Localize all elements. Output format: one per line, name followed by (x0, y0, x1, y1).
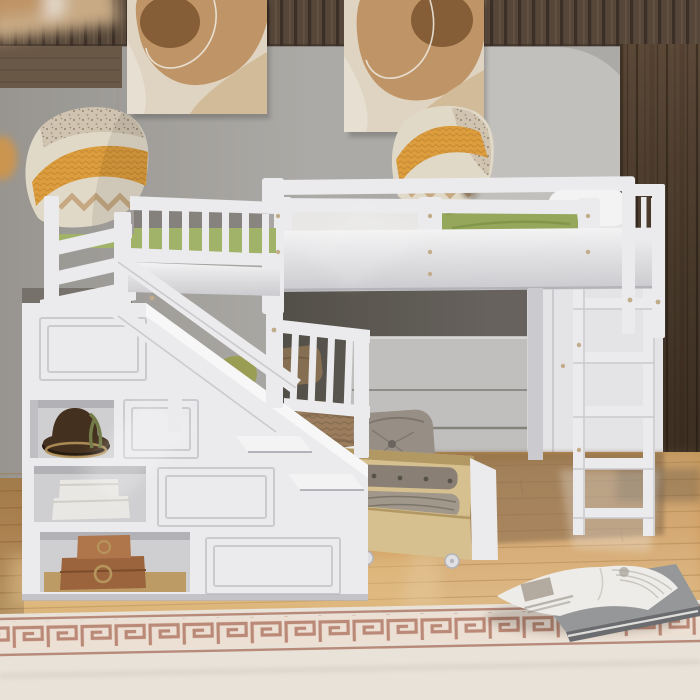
product-photo-bunk-bed (0, 0, 700, 700)
vignette (0, 0, 700, 700)
scene-canvas (0, 0, 700, 700)
